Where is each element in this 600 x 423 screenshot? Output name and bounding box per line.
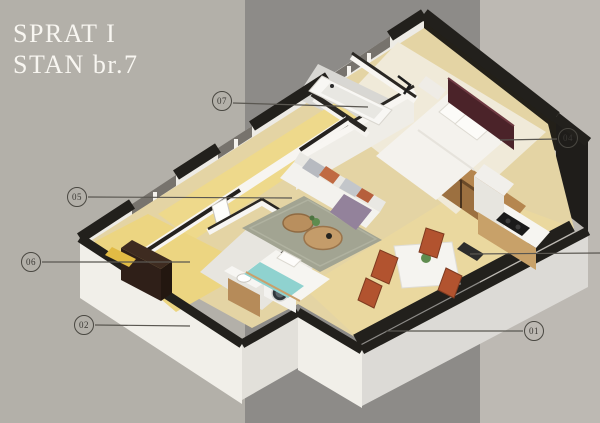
- callout-07-label: 07: [217, 96, 227, 106]
- plant: [310, 216, 315, 221]
- callout-01-label: 01: [529, 326, 539, 336]
- callout-05[interactable]: 05: [67, 187, 87, 207]
- callout-05-label: 05: [72, 192, 82, 202]
- coffee-table: [283, 214, 313, 232]
- callout-04-label: 04: [563, 133, 573, 143]
- table-decor: [326, 233, 332, 239]
- title-line-1: SPRAT I: [13, 18, 139, 49]
- faucet: [330, 84, 334, 88]
- burner: [516, 225, 521, 230]
- callout-01[interactable]: 01: [524, 321, 544, 341]
- callout-07[interactable]: 07: [212, 91, 232, 111]
- callout-06[interactable]: 06: [21, 252, 41, 272]
- coffee-table: [304, 227, 342, 250]
- page-title: SPRAT I STAN br.7: [13, 18, 139, 80]
- burner: [506, 219, 511, 224]
- title-line-2: STAN br.7: [13, 49, 139, 80]
- callout-02-label: 02: [79, 320, 89, 330]
- callout-04[interactable]: 04: [558, 128, 578, 148]
- floor-plan-page: 01 02 04 05 06 07 SPRAT I STAN br.7: [0, 0, 600, 423]
- callout-06-label: 06: [26, 257, 36, 267]
- callout-02[interactable]: 02: [74, 315, 94, 335]
